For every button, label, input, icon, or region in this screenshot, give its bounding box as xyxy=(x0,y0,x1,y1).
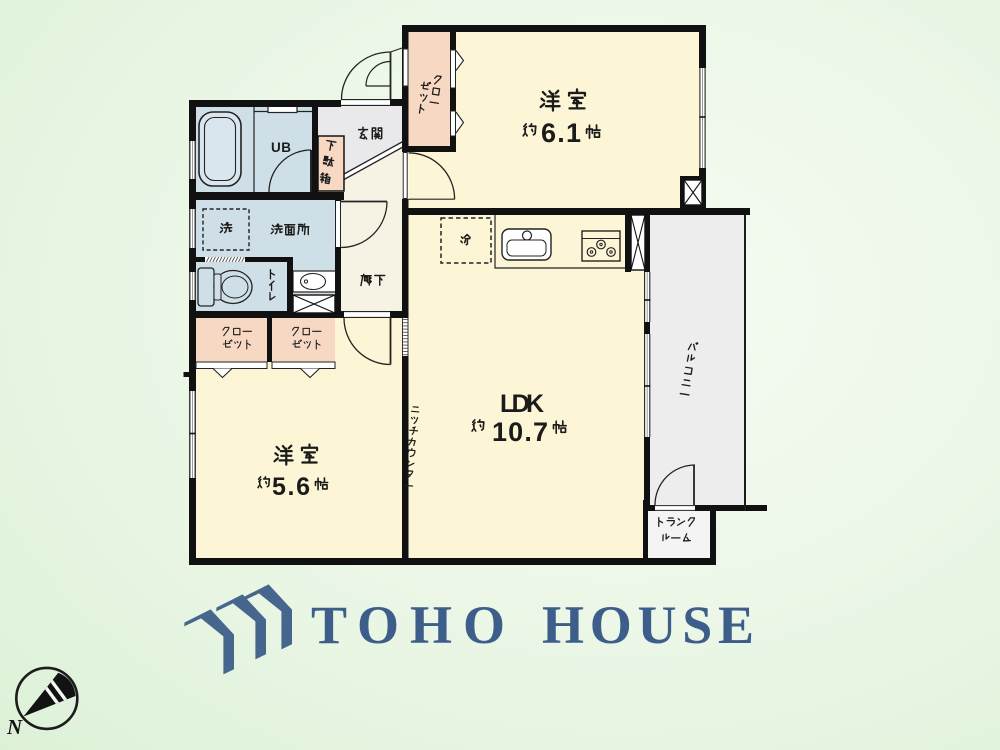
svg-text:HOUSE: HOUSE xyxy=(542,595,754,655)
svg-text:LDK: LDK xyxy=(500,390,544,418)
svg-text:N: N xyxy=(6,715,23,739)
svg-text:6.1: 6.1 xyxy=(541,118,581,148)
svg-text:5.6: 5.6 xyxy=(272,473,310,501)
svg-text:10.7: 10.7 xyxy=(492,417,548,447)
svg-text:UB: UB xyxy=(271,140,292,155)
